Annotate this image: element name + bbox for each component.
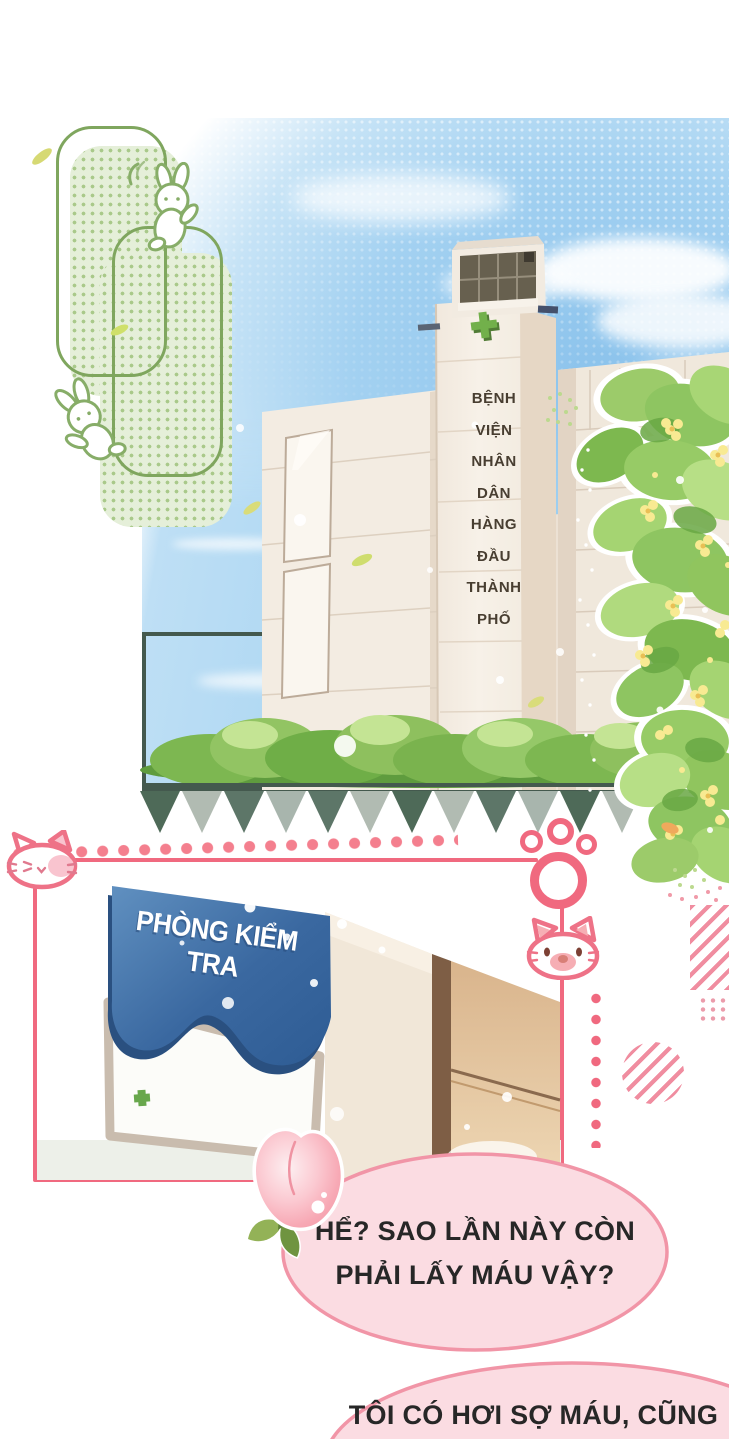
pennant: [140, 791, 180, 833]
pennant: [308, 791, 348, 833]
peach-icon: [245, 1118, 355, 1268]
pennant: [266, 791, 306, 833]
pennant: [476, 791, 516, 833]
cat-face-icon: [524, 916, 602, 980]
pennant: [182, 791, 222, 833]
pennant: [434, 791, 474, 833]
speech-bubble-2-line-1: TÔI CÓ HƠI SỢ MÁU, CŨNG: [338, 1400, 729, 1431]
diagonal-stripes-decoration: [690, 905, 729, 990]
paw-print-icon: [514, 814, 604, 904]
striped-circle-decoration: [622, 1042, 684, 1104]
pennant: [350, 791, 390, 833]
pennant: [224, 791, 264, 833]
comic-page: BỆNH VIỆN NHÂN DÂN HÀNG ĐẦU THÀNH PHỐ: [0, 0, 729, 1439]
pink-dotted-line-vertical: [590, 988, 602, 1148]
dot-scatter-decoration: [698, 996, 729, 1023]
cat-face-icon: [4, 830, 80, 890]
pennant: [392, 791, 432, 833]
